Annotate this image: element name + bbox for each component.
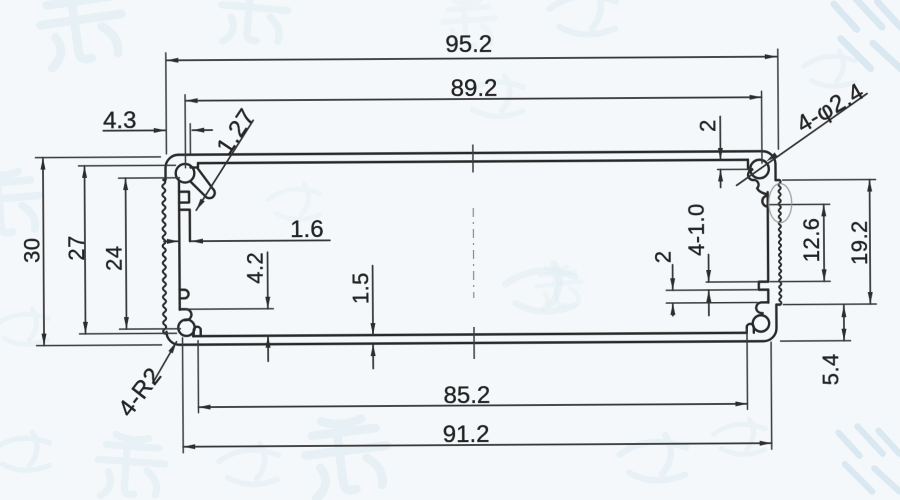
svg-text:19.2: 19.2 (847, 220, 872, 265)
svg-text:1.6: 1.6 (290, 216, 324, 243)
svg-text:89.2: 89.2 (451, 75, 498, 102)
svg-text:4.3: 4.3 (103, 107, 137, 134)
svg-text:24: 24 (101, 245, 126, 271)
svg-text:85.2: 85.2 (443, 382, 490, 409)
svg-text:91.2: 91.2 (443, 421, 490, 448)
svg-text:5.4: 5.4 (818, 353, 843, 385)
svg-text:4.2: 4.2 (243, 252, 268, 284)
svg-text:2: 2 (695, 119, 720, 132)
svg-text:2: 2 (651, 250, 676, 263)
svg-text:95.2: 95.2 (445, 31, 492, 58)
svg-text:12.6: 12.6 (799, 217, 824, 262)
svg-text:27: 27 (64, 235, 89, 261)
svg-text:4-1.0: 4-1.0 (684, 203, 709, 256)
svg-text:1.5: 1.5 (348, 272, 373, 304)
svg-text:30: 30 (19, 237, 44, 263)
